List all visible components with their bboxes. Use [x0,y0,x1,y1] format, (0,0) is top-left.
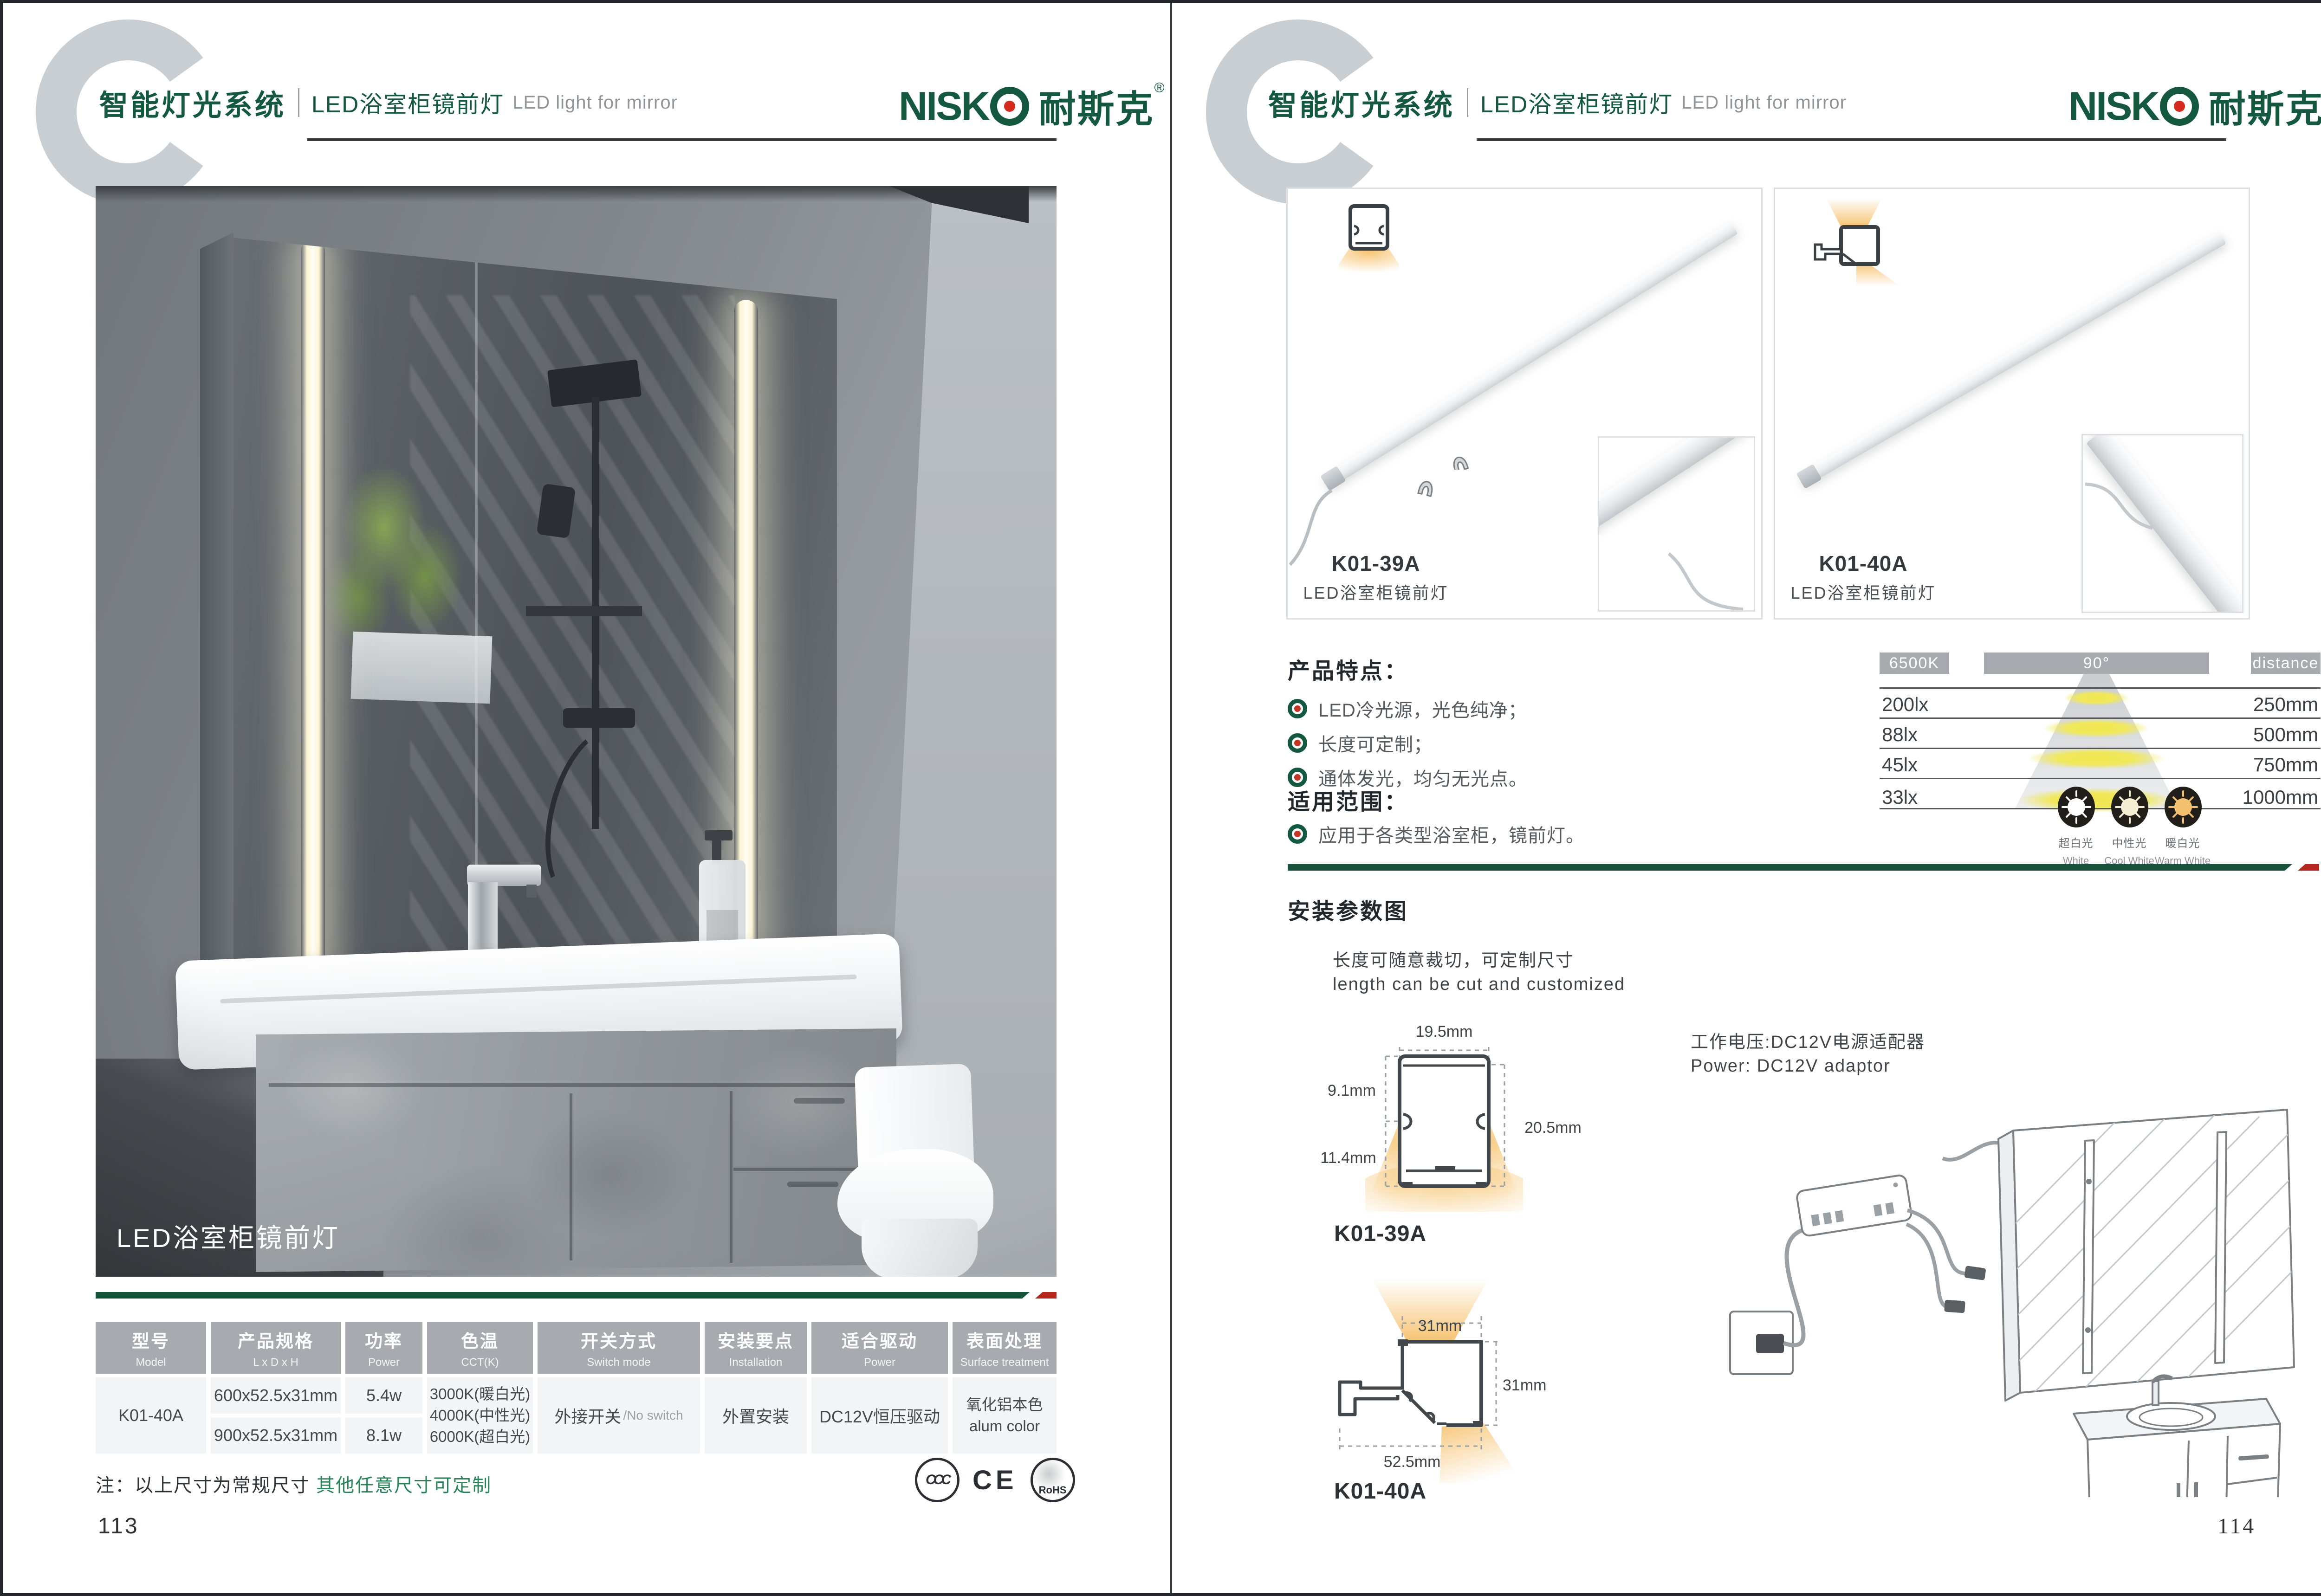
lux-value: 88lx [1882,724,1918,746]
product-photo: LED浴室柜镜前灯 [96,186,1057,1277]
header-separator [298,88,299,117]
cut-note-cn: 长度可随意裁切，可定制尺寸 [1333,946,1574,971]
divider-green-bar [1288,864,2292,871]
col-header-model: 型号Model [96,1322,206,1374]
detail-bar [1598,436,1755,549]
feature-item: 长度可定制； [1288,730,1433,756]
dim-top: 31mm [1398,1317,1482,1335]
feature-item: LED冷光源，光色纯净； [1288,695,1527,722]
cell-surface: 氧化铝本色alum color [953,1377,1057,1454]
header-separator [1467,88,1468,117]
detail-inset-image [2081,434,2243,613]
detail-inset-image [1598,436,1755,612]
brand-cn: 耐斯克 [2208,79,2321,133]
rohs-cert-icon: RoHS [1031,1458,1075,1502]
col-header-power: 功率Power [345,1322,422,1374]
product-name: LED浴室柜镜前灯 [1292,580,1459,604]
product-title-cn: LED浴室柜镜前灯 [311,86,504,119]
brand-logo: NISK 耐斯克 ® [2068,79,2321,133]
scope-title: 适用范围： [1288,783,1408,816]
cell-driver: DC12V恒压驱动 [811,1377,948,1454]
brand-cn: 耐斯克 [1038,79,1154,133]
col-header-switch: 开关方式Switch mode [538,1322,700,1374]
profile-down-light-icon [1339,200,1399,275]
bullet-mark-icon [1288,824,1307,844]
diagram-model: K01-39A [1334,1221,1426,1247]
accent-divider [1288,864,2319,871]
page-number-right: 114 [2217,1513,2256,1539]
product-title-cn: LED浴室柜镜前灯 [1480,86,1673,119]
mounting-clip-icon [1415,470,1452,498]
bullet-mark-icon [1288,733,1307,753]
light-distribution-table: 6500K 90° distance 200lx 88lx 45lx 33lx … [1880,653,2321,813]
brand-latin: NISK [2068,84,2158,129]
power-note-cn: 工作电压:DC12V电源适配器 [1691,1027,1925,1053]
lux-value: 45lx [1882,754,1918,776]
dim-right-height: 20.5mm [1524,1119,1599,1137]
col-header-driver: 适合驱动Power [811,1322,948,1374]
ccc-cert-icon: CCC [915,1458,960,1502]
power-note-en: Power: DC12V adaptor [1691,1056,1891,1076]
divider-red-tip [1035,1292,1057,1299]
cell-power-1: 5.4w [345,1377,422,1414]
cell-switch: 外接开关/No switch [538,1377,700,1454]
size-note-regular: 注：以上尺寸为常规尺寸 [96,1475,316,1496]
col-header-spec: 产品规格L x D x H [211,1322,341,1374]
feature-text: 长度可定制； [1318,730,1433,756]
distance-value: 500mm [2218,724,2318,746]
brand-o-mark-icon [2160,87,2199,126]
bullet-mark-icon [1288,699,1307,718]
brand-registered-mark: ® [1154,80,1164,96]
row-line [1880,687,2321,689]
divider-red-tip [2298,864,2319,871]
led-bar-endcap [1796,464,1822,489]
light-spot [2052,687,2140,709]
features-title: 产品特点： [1288,653,1408,685]
cell-spec-900: 900x52.5x31mm [211,1417,341,1454]
diagram-model: K01-40A [1334,1479,1426,1504]
page-left: 智能灯光系统 LED浴室柜镜前灯 LED light for mirror NI… [3,3,1171,1596]
product-panel-k01-39a: K01-39A LED浴室柜镜前灯 [1286,187,1763,620]
distance-header: distance [2251,653,2321,674]
size-note: 注：以上尺寸为常规尺寸 其他任意尺寸可定制 [96,1470,492,1497]
profile-diagram-k01-39a [1365,1021,1523,1212]
cell-model: K01-40A [96,1377,206,1454]
lux-value: 33lx [1882,786,1918,808]
cut-note-en: length can be cut and customized [1333,975,1625,995]
dim-width: 19.5mm [1395,1023,1493,1041]
dim-lower-height: 11.4mm [1317,1149,1380,1167]
light-spot [2024,715,2168,741]
install-title: 安装参数图 [1288,893,1408,925]
accent-divider [96,1292,1057,1299]
header-rule [1477,138,2226,141]
installation-illustration [1688,1089,2310,1497]
detail-wire [2083,477,2157,533]
product-title-en: LED light for mirror [1681,92,1847,113]
profile-diagram-k01-40a [1328,1279,1523,1483]
corner-profile-light-icon [1812,198,1900,286]
feature-text: LED冷光源，光色纯净； [1318,695,1527,722]
brand-latin: NISK [899,84,988,129]
row-line [1880,717,2321,719]
ce-cert-icon: CE [972,1465,1018,1496]
photo-caption: LED浴室柜镜前灯 [117,1217,340,1255]
lux-value: 200lx [1882,693,1928,716]
product-model: K01-39A [1292,551,1459,576]
distance-value: 250mm [2218,693,2318,716]
product-panel-k01-40a: K01-40A LED浴室柜镜前灯 [1774,187,2250,620]
dim-bottom: 52.5mm [1368,1453,1456,1471]
certification-row: CCC CE RoHS [915,1458,1075,1502]
photo-vignette [96,186,1057,1277]
brand-logo: NISK 耐斯克 ® [899,79,1165,133]
product-model: K01-40A [1780,551,1947,576]
catalog-spread: 智能灯光系统 LED浴室柜镜前灯 LED light for mirror NI… [0,0,2321,1596]
size-note-custom: 其他任意尺寸可定制 [316,1475,492,1496]
cool-white-sun-icon [2108,785,2151,829]
cct-header: 6500K [1880,653,1949,674]
section-title: 智能灯光系统 [99,82,286,123]
brand-o-mark-icon [990,87,1029,126]
col-header-installation: 安装要点Installation [705,1322,807,1374]
section-title: 智能灯光系统 [1268,82,1455,123]
mounting-clip-icon [1446,442,1483,470]
distance-value: 750mm [2218,754,2318,776]
detail-wire [1655,549,1748,612]
dim-upper-height: 9.1mm [1324,1082,1380,1100]
product-name: LED浴室柜镜前灯 [1780,580,1947,604]
divider-green-bar [96,1292,1030,1299]
col-header-cct: 色温CCT(K) [427,1322,533,1374]
beam-angle-header: 90° [1984,653,2209,674]
page-right: 智能灯光系统 LED浴室柜镜前灯 LED light for mirror NI… [1171,3,2321,1596]
warm-white-sun-icon [2162,785,2204,829]
spec-table: 型号Model K01-40A 产品规格L x D x H 600x52.5x3… [96,1322,1057,1454]
page-header: 智能灯光系统 LED浴室柜镜前灯 LED light for mirror [1268,82,1847,123]
cell-power-2: 8.1w [345,1417,422,1454]
row-line [1880,748,2321,749]
col-header-surface: 表面处理Surface treatment [953,1322,1057,1374]
row-line [1880,778,2321,779]
dim-right: 31mm [1503,1376,1568,1395]
cell-spec-600: 600x52.5x31mm [211,1377,341,1414]
cell-installation: 外置安装 [705,1377,807,1454]
white-sun-icon [2055,785,2098,829]
cell-cct: 3000K(暖白光) 4000K(中性光) 6000K(超白光) [427,1377,533,1454]
header-rule [307,138,1057,141]
product-title-en: LED light for mirror [512,92,678,113]
page-header: 智能灯光系统 LED浴室柜镜前灯 LED light for mirror [99,82,678,123]
scope-text: 应用于各类型浴室柜，镜前灯。 [1318,821,1585,847]
distance-value: 1000mm [2218,786,2318,808]
scope-item: 应用于各类型浴室柜，镜前灯。 [1288,821,1585,847]
page-number-left: 113 [98,1513,139,1539]
